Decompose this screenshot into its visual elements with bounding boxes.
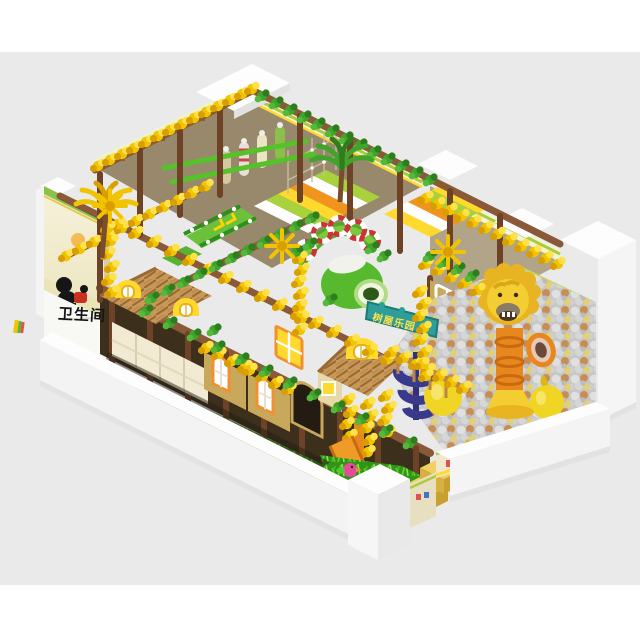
background-band-top xyxy=(0,0,640,52)
background-band-bottom xyxy=(0,585,640,640)
restroom-floor-label: 卫生间 xyxy=(58,305,107,325)
starburst-flower xyxy=(266,230,298,262)
right-outer-wall xyxy=(598,240,636,427)
entrance-pillar xyxy=(348,464,410,560)
starburst-flower xyxy=(94,190,126,222)
starburst-flower xyxy=(432,236,464,268)
playground-render: 树屋乐园 xyxy=(0,0,640,640)
playground-product-image: 树屋乐园 xyxy=(0,0,640,640)
shuttered-window xyxy=(322,382,335,395)
